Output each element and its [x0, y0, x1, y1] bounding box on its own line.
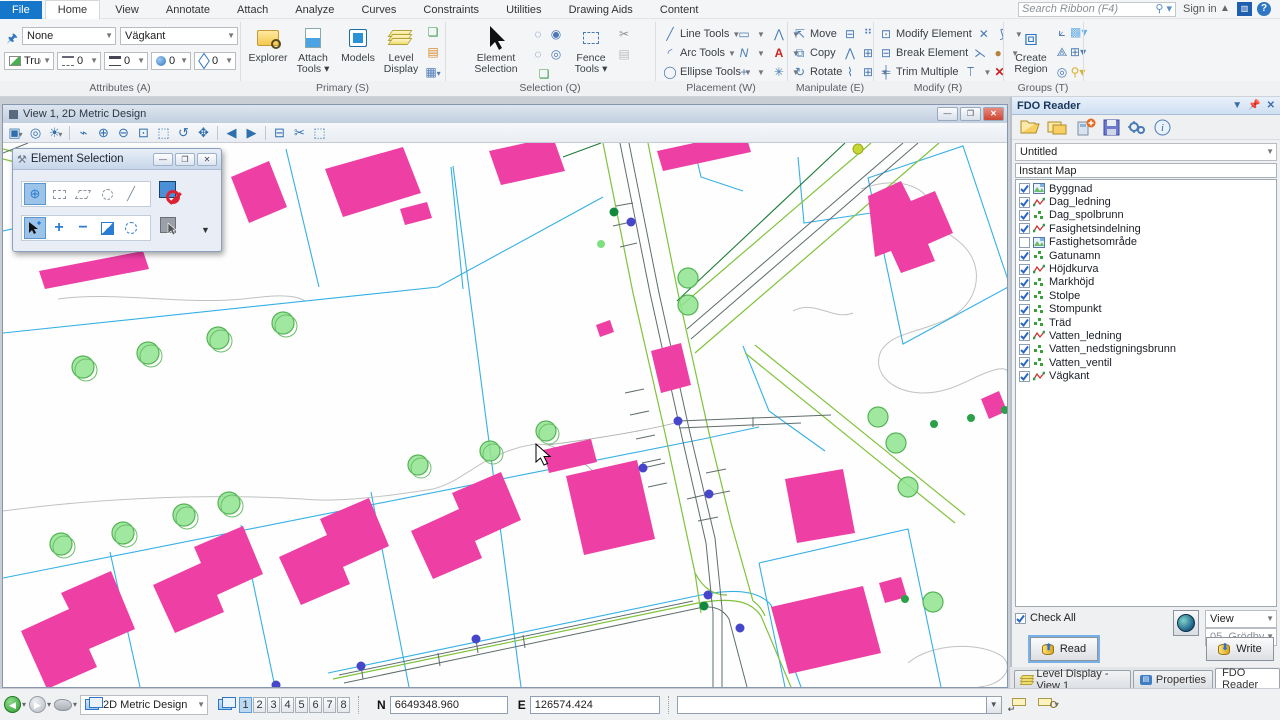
layer-type-icon — [1033, 183, 1046, 195]
layer-type-icon — [1033, 317, 1046, 329]
dialog-restore-button[interactable]: ❐ — [175, 153, 195, 166]
create-region-button[interactable]: ⧈Create Region — [1008, 23, 1054, 75]
dock-tab-bar: Level Display - View 1 ▤Properties FDO R… — [1010, 667, 1280, 688]
explorer-button[interactable]: Explorer — [247, 23, 289, 64]
color-combo[interactable]: True C▼ — [4, 52, 54, 70]
view-minimize-button[interactable]: — — [937, 107, 958, 121]
layer-checkbox[interactable] — [1019, 223, 1030, 234]
drop-element-icon[interactable]: ⟁ — [1054, 45, 1070, 60]
update-view-icon[interactable]: ⌁ — [75, 125, 92, 141]
tab-curves[interactable]: Curves — [349, 1, 408, 20]
layer-row-gatunamn[interactable]: Gatunamn — [1019, 249, 1276, 262]
layer-name: Vatten_ledning — [1049, 330, 1122, 342]
layer-name: Stompunkt — [1049, 303, 1102, 315]
level-manager-icon[interactable]: ▦▾ — [425, 65, 441, 79]
clear-selection-button[interactable] — [120, 217, 142, 239]
layer-name: Byggnad — [1049, 183, 1092, 195]
line-mode-button[interactable]: ╱ — [120, 183, 142, 205]
element-selection-button[interactable]: Element Selection — [468, 23, 524, 75]
lock-element-icon[interactable]: ◉ — [548, 27, 564, 41]
check-all-label: Check All — [1030, 612, 1076, 624]
search-placeholder: Search Ribbon (F4) — [1022, 3, 1118, 15]
group-label-placement: Placement (W) — [655, 82, 787, 94]
group-label-primary: Primary (S) — [240, 82, 445, 94]
settings-gears-icon[interactable] — [1127, 119, 1147, 136]
layer-row-vatten-nedstigningsbrunn[interactable]: Vatten_nedstigningsbrunn — [1019, 343, 1276, 356]
open-file-icon[interactable] — [1020, 119, 1040, 135]
layer-type-icon — [1033, 236, 1046, 248]
tab-properties[interactable]: ▤Properties — [1133, 670, 1213, 688]
layer-type-icon — [1033, 250, 1046, 262]
points-button[interactable]: +▼✳▼ — [736, 63, 800, 81]
layer-row-markhojd[interactable]: Markhöjd — [1019, 276, 1276, 289]
layer-type-icon — [1033, 343, 1046, 355]
class-icon — [156, 56, 166, 66]
zoom-in-icon[interactable]: ⊕ — [95, 125, 112, 141]
layer-name: Vägkant — [1049, 370, 1089, 382]
view-toggle-5[interactable]: 5 — [295, 697, 308, 713]
group-label-attributes: Attributes (A) — [0, 82, 240, 94]
help-icon[interactable]: ? — [1257, 2, 1271, 16]
layer-checkbox[interactable] — [1019, 197, 1030, 208]
dialog-expand-caret[interactable]: ▼ — [201, 225, 210, 235]
panel-pin-icon[interactable]: 📌 — [1248, 100, 1260, 111]
no-entry-icon — [166, 190, 180, 204]
tab-level-display[interactable]: Level Display - View 1 — [1014, 670, 1131, 688]
view-toggle-3[interactable]: 3 — [267, 697, 280, 713]
layer-name: Träd — [1049, 317, 1071, 329]
view-previous-icon[interactable]: ◀ — [223, 125, 240, 141]
group-label-manipulate: Manipulate (E) — [787, 82, 873, 94]
layer-type-icon — [1033, 223, 1046, 235]
ribbon-group-labels: Attributes (A) Primary (S) Selection (Q)… — [0, 81, 1280, 97]
tab-fdo-reader[interactable]: FDO Reader — [1215, 668, 1280, 688]
undo-caret[interactable]: ▾ — [22, 700, 26, 709]
layer-checkbox[interactable] — [1019, 210, 1030, 221]
level-display-tab-icon — [1021, 675, 1032, 684]
layer-type-icon — [1033, 330, 1046, 342]
info-icon[interactable]: i — [1154, 119, 1171, 136]
element-selection-icon — [486, 25, 506, 51]
layer-checkbox[interactable] — [1019, 290, 1030, 301]
layer-checkbox[interactable] — [1019, 344, 1030, 355]
layer-type-icon — [1033, 357, 1046, 369]
model-combo[interactable]: 2D Metric Design▼ — [80, 695, 208, 715]
attach-pointcloud-icon[interactable]: ▤ — [425, 45, 441, 59]
trim-multiple-button[interactable]: ╪Trim Multiple⟙▼✕ — [878, 63, 1009, 81]
subtract-selection-button[interactable]: − — [72, 217, 94, 239]
layer-checkbox[interactable] — [1019, 371, 1030, 382]
fdo-panel-title-bar[interactable]: FDO Reader ▼ 📌 ✕ — [1012, 97, 1280, 115]
level-display-button[interactable]: Level Display — [380, 23, 422, 75]
select-previous-icon[interactable]: ❏ — [536, 67, 552, 81]
block-mode-button[interactable] — [48, 183, 70, 205]
template-combo[interactable]: None▼ — [22, 27, 116, 45]
view-attributes-icon[interactable]: ▣▾ — [7, 125, 24, 141]
tab-constraints[interactable]: Constraints — [411, 1, 491, 20]
circle-mode-button[interactable] — [96, 183, 118, 205]
tab-annotate[interactable]: Annotate — [154, 1, 222, 20]
fence-tools-button[interactable]: Fence Tools ▾ — [568, 23, 614, 75]
layer-type-icon — [1033, 263, 1046, 275]
layer-row-stompunkt[interactable]: Stompunkt — [1019, 303, 1276, 316]
redo-caret[interactable]: ▾ — [47, 700, 51, 709]
east-label: E — [518, 698, 526, 712]
layer-row-vatten-ledning[interactable]: Vatten_ledning — [1019, 329, 1276, 342]
layer-checkbox[interactable] — [1019, 277, 1030, 288]
rotate-button[interactable]: ↻Rotate — [792, 63, 842, 81]
handles-arrow-icon — [166, 223, 178, 237]
modify-element-button[interactable]: ⊡Modify Element✕⟆▼ — [878, 25, 1023, 43]
move-button[interactable]: ⇱Move — [792, 25, 837, 43]
class-combo[interactable]: 0▼ — [151, 52, 191, 70]
markup-caret[interactable]: ▾ — [73, 700, 77, 709]
layer-type-icon — [1033, 276, 1046, 288]
shapes-button[interactable]: ▭▼⋀▼ — [736, 25, 800, 43]
view-toggle-4[interactable]: 4 — [281, 697, 294, 713]
invert-selection-button[interactable] — [96, 217, 118, 239]
layer-type-icon — [1033, 196, 1046, 208]
view-title-bar[interactable]: View 1, 2D Metric Design — ❐ ✕ — [3, 105, 1007, 123]
clip-volume-icon[interactable]: ✂ — [291, 125, 308, 141]
view-display-style-icon[interactable]: ◎ — [27, 125, 44, 141]
properties-tab-icon: ▤ — [1140, 675, 1152, 685]
east-coordinate-field[interactable]: 126574.424 — [530, 696, 660, 714]
write-icon: ⬇ — [1218, 642, 1231, 657]
tab-home[interactable]: Home — [45, 0, 100, 19]
fdo-toolbar: i — [1012, 115, 1280, 140]
search-input[interactable]: Search Ribbon (F4)⚲ ▾ — [1018, 2, 1176, 17]
layer-type-icon — [1033, 370, 1046, 382]
zoom-out-icon[interactable]: ⊖ — [115, 125, 132, 141]
preview-button[interactable] — [1173, 610, 1199, 636]
save-icon[interactable] — [1103, 119, 1120, 136]
selection-mode-strip: ⊕ ╱ — [21, 181, 151, 207]
view-close-button[interactable]: ✕ — [983, 107, 1004, 121]
view-toggles-icon[interactable] — [218, 699, 232, 710]
individual-mode-button[interactable]: ⊕ — [24, 183, 46, 205]
view-toggle-2[interactable]: 2 — [253, 697, 266, 713]
layer-checkbox[interactable] — [1019, 183, 1030, 194]
selection-method-strip: + − — [21, 215, 151, 241]
clip-mask-icon[interactable]: ⬚ — [311, 125, 328, 141]
layer-name: Fastighetsområde — [1049, 236, 1137, 248]
undo-view-button[interactable]: ◀ — [4, 696, 21, 713]
fence-tools-icon — [583, 32, 599, 44]
view-toggle-7[interactable]: 7 — [323, 697, 336, 713]
layer-row-dag-ledning[interactable]: Dag_ledning — [1019, 195, 1276, 208]
unlock-element-icon[interactable]: ◎ — [548, 47, 564, 61]
tab-utilities[interactable]: Utilities — [494, 1, 553, 20]
line-style-combo[interactable]: 0▼ — [57, 52, 101, 70]
view-next-icon[interactable]: ▶ — [243, 125, 260, 141]
line-weight-icon — [109, 56, 121, 66]
layer-row-fastighetsomrade[interactable]: Fastighetsområde — [1019, 236, 1276, 249]
fit-view-icon[interactable]: ⬚ — [155, 125, 172, 141]
layer-name: Höjdkurva — [1049, 263, 1099, 275]
read-button[interactable]: ⬆Read — [1030, 637, 1098, 661]
layer-checkbox[interactable] — [1019, 237, 1030, 248]
dialog-close-button[interactable]: ✕ — [197, 153, 217, 166]
keyin-search-icon[interactable] — [1036, 698, 1054, 711]
layer-checkbox[interactable] — [1019, 357, 1030, 368]
view-toolbar: ▣▾ ◎ ☀▾ ⌁ ⊕ ⊖ ⊡ ⬚ ↺ ✥ ◀ ▶ ⊟ ✂ ⬚ — [3, 123, 1007, 143]
markup-tool-icon[interactable] — [54, 699, 72, 711]
map-name-field[interactable]: Instant Map — [1015, 163, 1277, 178]
group-label-selection: Selection (Q) — [445, 82, 655, 94]
status-bar: ◀▾ ▶▾ ▾ 2D Metric Design▼ 1 2 3 4 5 6 7 … — [0, 688, 1280, 720]
create-region-icon: ⧈ — [1024, 25, 1038, 51]
keyin-dropdown[interactable]: ▼ — [987, 696, 1002, 714]
copy-button[interactable]: ⧉Copy — [792, 44, 836, 62]
sketch-button[interactable]: N▼A▼ — [736, 44, 800, 62]
dataset-combo[interactable]: Untitled▼ — [1015, 143, 1277, 161]
layer-checkbox[interactable] — [1019, 250, 1030, 261]
add-source-icon[interactable] — [1076, 118, 1096, 136]
explorer-icon — [257, 30, 279, 46]
arc-tools-button[interactable]: ◜Arc Tools▼ — [662, 44, 736, 62]
attach-tools-icon — [305, 28, 321, 48]
layer-name: Dag_spolbrunn — [1049, 209, 1124, 221]
view-toggle-8[interactable]: 8 — [337, 697, 350, 713]
connect-center-icon[interactable]: ▥ — [1237, 2, 1252, 16]
line-tools-button[interactable]: ╱Line Tools▼ — [662, 25, 740, 43]
layer-row-hojdkurva[interactable]: Höjdkurva — [1019, 262, 1276, 275]
layer-type-icon — [1033, 303, 1046, 315]
dialog-title: Element Selection — [31, 153, 151, 165]
paste-fence-icon[interactable]: ▤ — [616, 47, 632, 61]
model-icon — [85, 699, 99, 710]
layer-name: Gatunamn — [1049, 250, 1100, 262]
rotate-view-icon[interactable]: ↺ — [175, 125, 192, 141]
north-coordinate-field[interactable]: 6649348.960 — [390, 696, 508, 714]
layer-name: Fasighetsindelning — [1049, 223, 1141, 235]
layer-name: Markhöjd — [1049, 276, 1094, 288]
line-weight-combo[interactable]: 0▼ — [104, 52, 148, 70]
write-button[interactable]: ⬇Write — [1206, 637, 1274, 661]
layer-row-fasighetsindelning[interactable]: Fasighetsindelning — [1019, 222, 1276, 235]
select-none-icon[interactable]: ◌ — [530, 47, 546, 61]
window-area-icon[interactable]: ⊡ — [135, 125, 152, 141]
clip-fence-icon[interactable]: ✂ — [616, 27, 632, 41]
tab-attach[interactable]: Attach — [225, 1, 280, 20]
group-label-groups: Groups (T) — [1003, 82, 1083, 94]
element-selection-dialog[interactable]: ⚒ Element Selection — ❐ ✕ ⊕ ╱ + − ▼ — [12, 148, 222, 252]
panel-close-icon[interactable]: ✕ — [1267, 100, 1275, 111]
layer-row-dag-spolbrunn[interactable]: Dag_spolbrunn — [1019, 209, 1276, 222]
layer-name: Vatten_nedstigningsbrunn — [1049, 343, 1176, 355]
collapse-ribbon-icon[interactable]: ▲ — [1220, 3, 1230, 14]
extent-combo[interactable]: View▼ — [1205, 610, 1277, 628]
copy-view-icon[interactable]: ⊟ — [271, 125, 288, 141]
tab-file[interactable]: File — [0, 1, 42, 20]
tab-drawing-aids[interactable]: Drawing Aids — [557, 1, 645, 20]
attach-raster-icon[interactable]: ❏ — [425, 25, 441, 39]
models-icon — [349, 29, 367, 47]
active-template-icon[interactable]: 🖈 — [4, 29, 20, 50]
view-window-icon — [9, 110, 18, 119]
dialog-minimize-button[interactable]: — — [153, 153, 173, 166]
sign-in-link[interactable]: Sign in — [1183, 3, 1217, 15]
attach-tools-button[interactable]: Attach Tools ▾ — [292, 23, 334, 75]
layer-checkbox[interactable] — [1019, 304, 1030, 315]
layer-name: Vatten_ventil — [1049, 357, 1112, 369]
add-selection-button[interactable]: + — [48, 217, 70, 239]
active-level-combo[interactable]: Vägkant▼ — [120, 27, 238, 45]
north-label: N — [377, 698, 386, 712]
color-swatch — [9, 56, 21, 66]
redo-view-button[interactable]: ▶ — [29, 696, 46, 713]
models-button[interactable]: Models — [337, 23, 379, 64]
fdo-reader-panel: FDO Reader ▼ 📌 ✕ i Untitled▼ Instant Map… — [1010, 97, 1280, 667]
layer-type-icon — [1033, 209, 1046, 221]
view-title: View 1, 2D Metric Design — [23, 108, 146, 120]
layer-row-stolpe[interactable]: Stolpe — [1019, 289, 1276, 302]
tab-analyze[interactable]: Analyze — [283, 1, 346, 20]
layer-row-vatten-ventil[interactable]: Vatten_ventil — [1019, 356, 1276, 369]
break-element-button[interactable]: ⊟Break Element⋋●▼ — [878, 44, 1019, 62]
dialog-title-bar[interactable]: ⚒ Element Selection — ❐ ✕ — [13, 149, 221, 170]
fdo-panel-title: FDO Reader — [1017, 100, 1081, 112]
tab-content[interactable]: Content — [648, 1, 711, 20]
priority-icon — [198, 53, 210, 70]
ribbon: 🖈 None▼ Vägkant▼ True C▼ 0▼ 0▼ 0▼ 0▼ Exp… — [0, 19, 1280, 81]
keyin-browser-icon[interactable]: ↵ — [1010, 698, 1028, 711]
view-restore-button[interactable]: ❐ — [960, 107, 981, 121]
layer-name: Stolpe — [1049, 290, 1080, 302]
layer-name: Dag_ledning — [1049, 196, 1111, 208]
svg-text:i: i — [1161, 123, 1164, 134]
pan-view-icon[interactable]: ✥ — [195, 125, 212, 141]
select-all-icon[interactable]: ◌ — [530, 27, 546, 41]
annotation-scale-icon[interactable]: ◎ — [1054, 65, 1070, 79]
layer-row-trad[interactable]: Träd — [1019, 316, 1276, 329]
tab-view[interactable]: View — [103, 1, 151, 20]
layer-type-icon — [1033, 290, 1046, 302]
globe-icon — [1177, 614, 1195, 632]
layer-checkbox[interactable] — [1019, 317, 1030, 328]
layer-row-byggnad[interactable]: Byggnad — [1019, 182, 1276, 195]
panel-menu-icon[interactable]: ▼ — [1232, 100, 1242, 111]
view-toggle-1[interactable]: 1 — [239, 697, 252, 713]
view-brightness-icon[interactable]: ☀▾ — [47, 125, 64, 141]
line-style-icon — [62, 56, 74, 66]
new-selection-button[interactable] — [24, 217, 46, 239]
shape-mode-button[interactable] — [72, 183, 94, 205]
group-hole-icon[interactable]: ⟀ — [1054, 25, 1070, 40]
layer-checkbox[interactable] — [1019, 330, 1030, 341]
view-toggle-6[interactable]: 6 — [309, 697, 322, 713]
level-display-icon — [390, 30, 412, 46]
keyin-field[interactable] — [677, 696, 987, 714]
layer-checkbox[interactable] — [1019, 264, 1030, 275]
dialog-icon: ⚒ — [17, 153, 27, 166]
read-icon: ⬆ — [1042, 642, 1055, 657]
open-folder-icon[interactable] — [1047, 119, 1069, 135]
group-label-modify: Modify (R) — [873, 82, 1003, 94]
layer-list[interactable]: Byggnad Dag_ledning Dag_spolbrunn Fasigh… — [1015, 179, 1277, 607]
priority-combo[interactable]: 0▼ — [194, 52, 236, 70]
search-icon[interactable]: ⚲ ▾ — [1155, 3, 1172, 16]
layer-row-vagkant[interactable]: Vägkant — [1019, 369, 1276, 382]
